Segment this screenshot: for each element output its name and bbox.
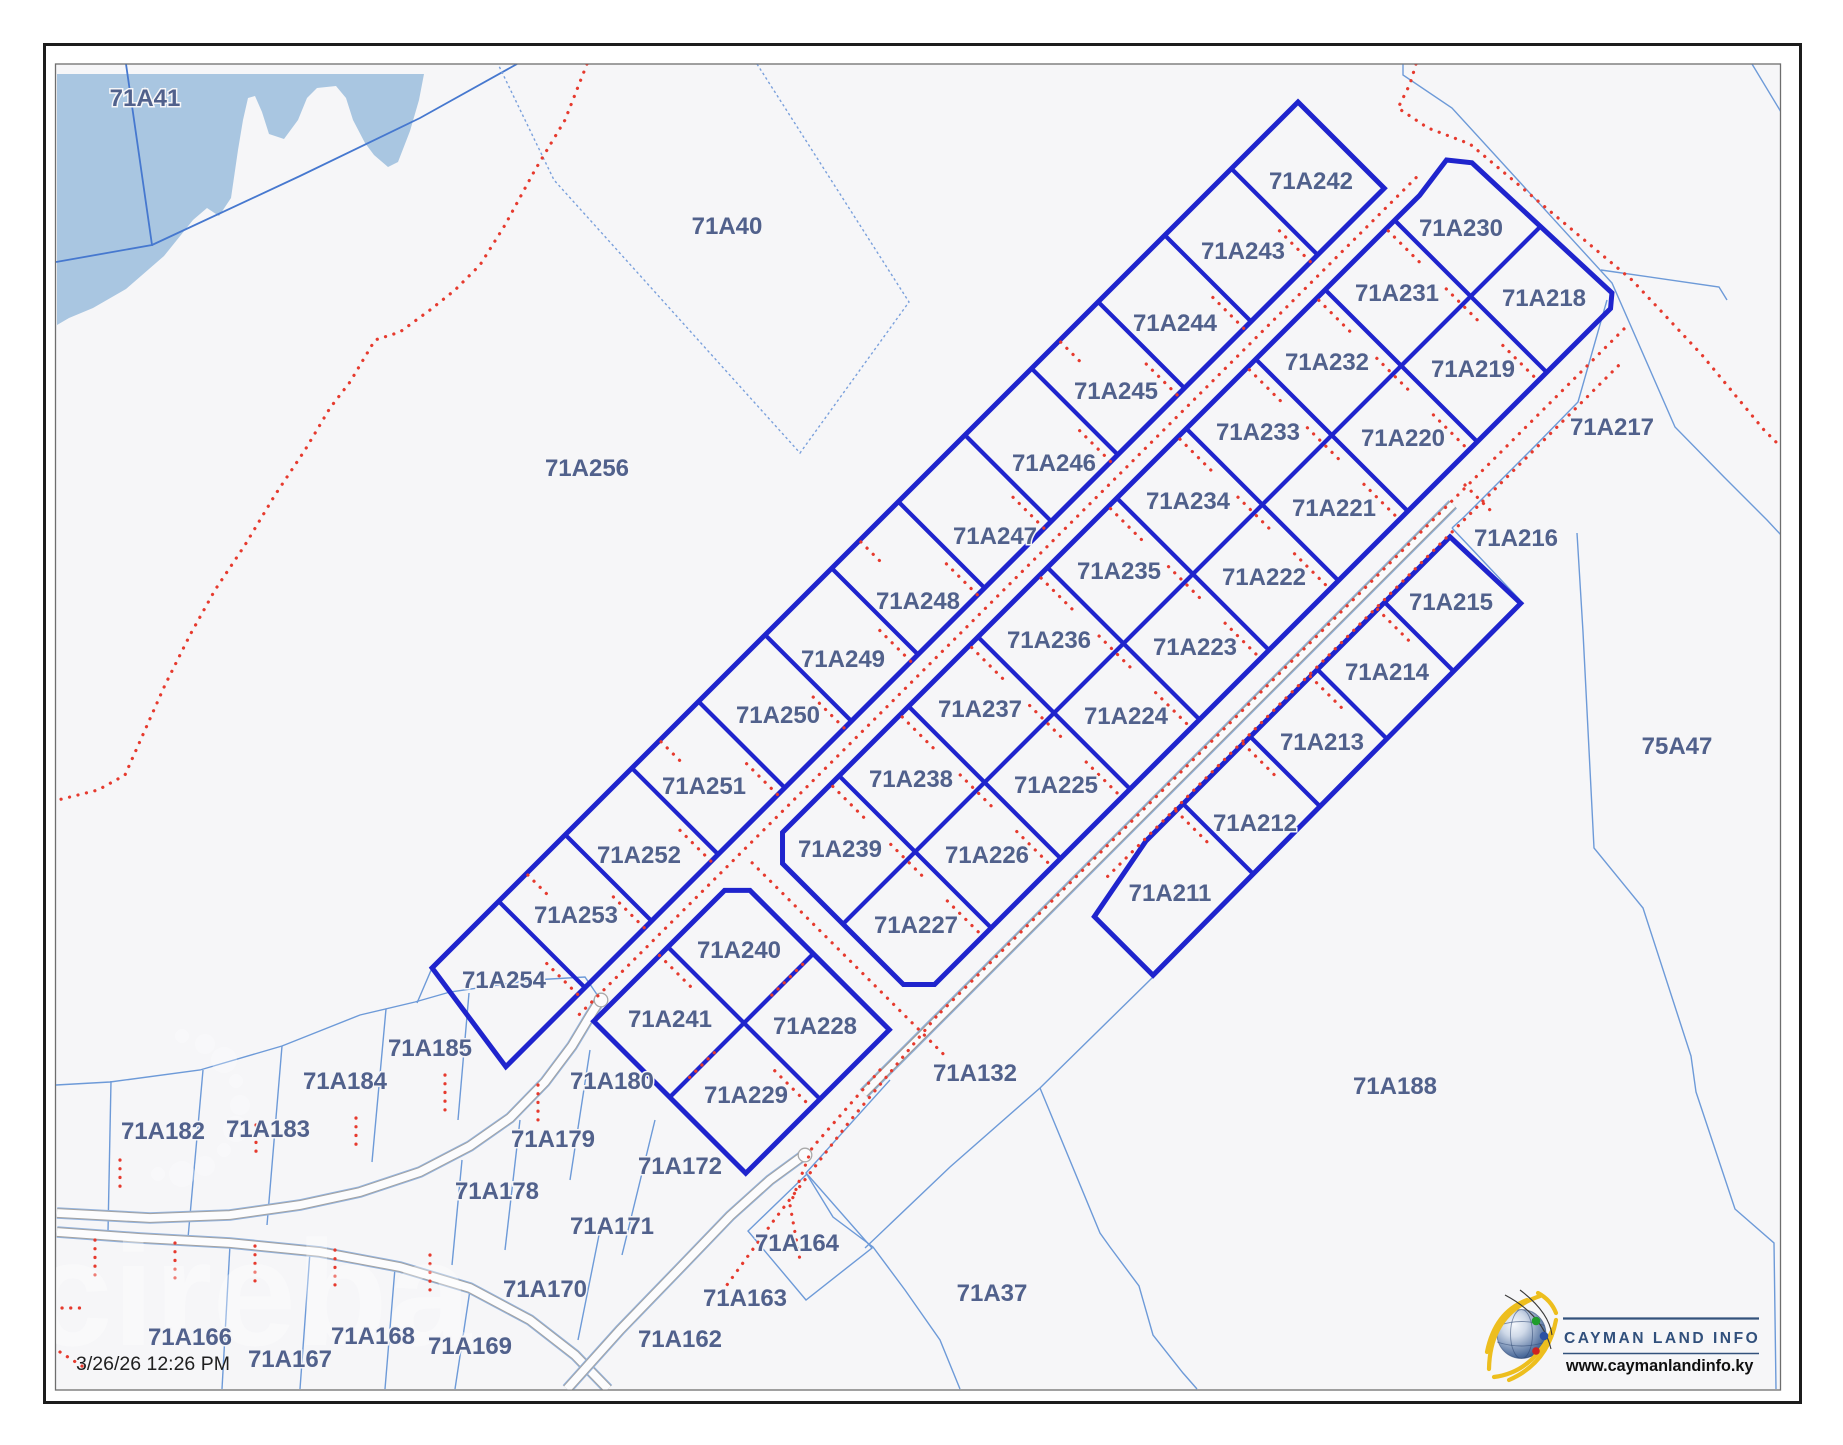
svg-text:71A222: 71A222 [1222,564,1306,591]
svg-text:71A249: 71A249 [801,646,885,673]
svg-text:71A182: 71A182 [121,1118,205,1145]
svg-text:71A240: 71A240 [697,937,781,964]
svg-text:71A218: 71A218 [1502,285,1586,312]
svg-text:71A172: 71A172 [638,1153,722,1180]
svg-text:71A242: 71A242 [1269,168,1353,195]
svg-text:71A164: 71A164 [755,1230,840,1257]
svg-text:71A170: 71A170 [503,1276,587,1303]
svg-text:71A246: 71A246 [1012,450,1096,477]
svg-text:71A230: 71A230 [1419,215,1503,242]
svg-text:71A233: 71A233 [1216,419,1300,446]
svg-text:71A162: 71A162 [638,1326,722,1353]
svg-text:71A235: 71A235 [1077,558,1161,585]
svg-text:71A41: 71A41 [110,85,181,112]
svg-text:71A226: 71A226 [945,842,1029,869]
svg-text:71A247: 71A247 [953,523,1037,550]
svg-text:CAYMAN LAND INFO: CAYMAN LAND INFO [1564,1330,1760,1347]
svg-text:71A211: 71A211 [1129,880,1212,907]
svg-text:71A225: 71A225 [1014,772,1098,799]
svg-text:3/26/26 12:26 PM: 3/26/26 12:26 PM [76,1353,230,1375]
svg-text:71A185: 71A185 [388,1035,472,1062]
svg-text:71A37: 71A37 [957,1280,1028,1307]
svg-text:71A238: 71A238 [869,766,953,793]
svg-text:71A216: 71A216 [1474,525,1558,552]
svg-text:71A224: 71A224 [1084,703,1169,730]
svg-text:71A228: 71A228 [773,1013,857,1040]
svg-text:www.caymanlandinfo.ky: www.caymanlandinfo.ky [1565,1357,1753,1375]
svg-text:71A40: 71A40 [692,213,763,240]
svg-text:71A241: 71A241 [628,1006,712,1033]
svg-text:71A188: 71A188 [1353,1073,1437,1100]
svg-text:71A220: 71A220 [1361,425,1445,452]
svg-text:71A239: 71A239 [798,836,882,863]
svg-text:71A166: 71A166 [148,1324,232,1351]
svg-text:71A217: 71A217 [1570,414,1654,441]
svg-text:71A243: 71A243 [1201,238,1285,265]
svg-text:71A163: 71A163 [703,1285,787,1312]
svg-text:71A248: 71A248 [876,588,960,615]
svg-text:71A212: 71A212 [1213,810,1297,837]
svg-text:71A184: 71A184 [303,1068,388,1095]
svg-text:71A183: 71A183 [226,1116,310,1143]
svg-text:71A132: 71A132 [933,1060,1017,1087]
svg-text:71A214: 71A214 [1345,659,1430,686]
svg-text:71A253: 71A253 [534,902,618,929]
svg-text:71A250: 71A250 [736,702,820,729]
svg-text:71A223: 71A223 [1153,634,1237,661]
svg-text:71A245: 71A245 [1074,378,1158,405]
svg-text:71A178: 71A178 [455,1178,539,1205]
svg-text:71A171: 71A171 [570,1213,654,1240]
svg-text:75A47: 75A47 [1642,733,1713,760]
svg-text:71A251: 71A251 [662,773,746,800]
svg-text:71A219: 71A219 [1431,356,1515,383]
svg-text:71A168: 71A168 [331,1323,415,1350]
svg-text:71A254: 71A254 [462,967,547,994]
svg-text:71A215: 71A215 [1409,589,1493,616]
svg-text:71A244: 71A244 [1133,310,1218,337]
svg-text:71A236: 71A236 [1007,627,1091,654]
svg-text:71A167: 71A167 [248,1346,332,1373]
svg-text:71A213: 71A213 [1280,729,1364,756]
svg-text:71A169: 71A169 [428,1333,512,1360]
svg-text:71A231: 71A231 [1355,280,1439,307]
svg-text:71A221: 71A221 [1292,495,1376,522]
svg-text:71A256: 71A256 [545,455,629,482]
svg-text:71A234: 71A234 [1146,488,1231,515]
svg-text:71A232: 71A232 [1285,349,1369,376]
svg-text:71A227: 71A227 [874,912,958,939]
svg-text:71A179: 71A179 [511,1126,595,1153]
svg-text:71A229: 71A229 [704,1082,788,1109]
svg-text:71A237: 71A237 [938,696,1022,723]
svg-text:71A252: 71A252 [597,842,681,869]
svg-text:71A180: 71A180 [570,1068,654,1095]
